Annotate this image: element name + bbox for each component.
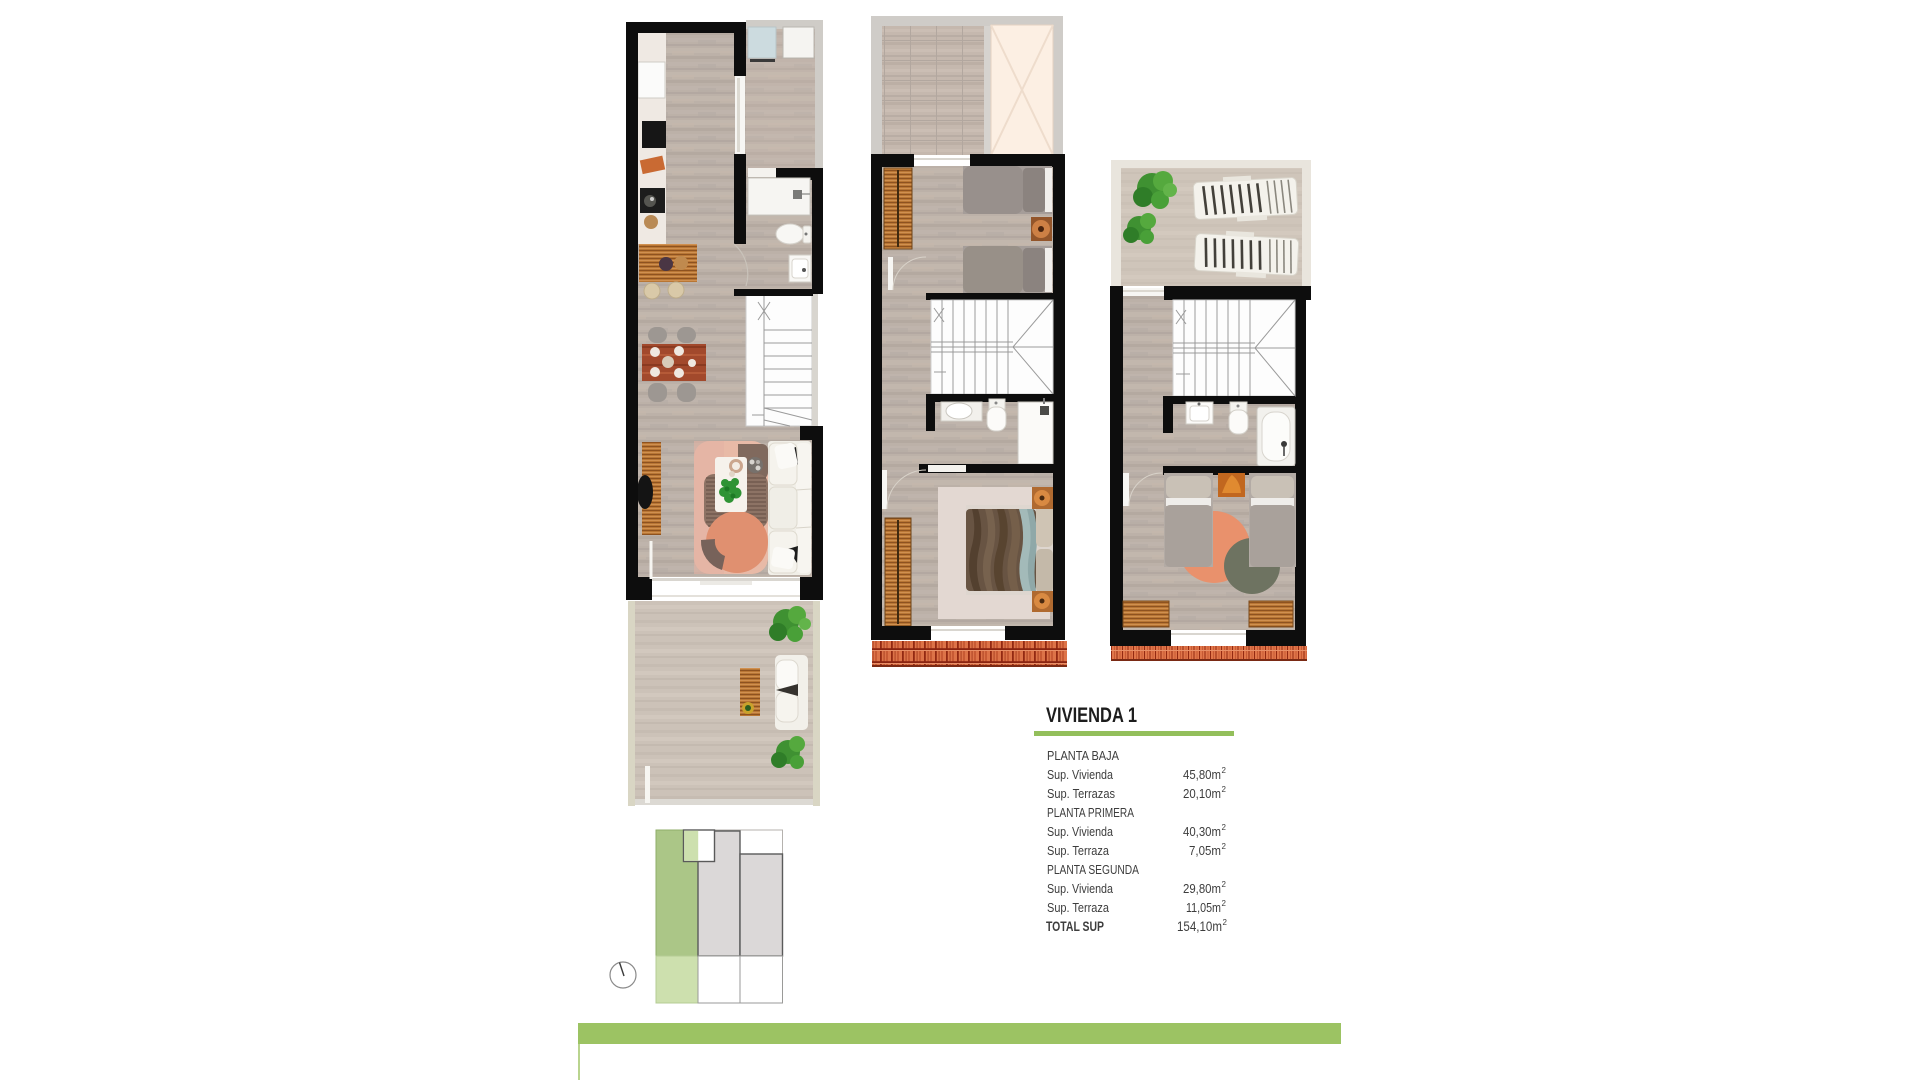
svg-text:45,80m: 45,80m <box>1183 767 1221 782</box>
svg-text:2: 2 <box>1222 823 1227 832</box>
svg-text:Sup. Terraza: Sup. Terraza <box>1047 900 1110 915</box>
svg-text:Sup. Vivienda: Sup. Vivienda <box>1047 824 1114 839</box>
svg-text:154,10m: 154,10m <box>1177 919 1222 934</box>
svg-text:Sup. Vivienda: Sup. Vivienda <box>1047 767 1114 782</box>
svg-text:PLANTA SEGUNDA: PLANTA SEGUNDA <box>1047 862 1139 877</box>
svg-text:11,05m: 11,05m <box>1186 900 1221 915</box>
svg-text:2: 2 <box>1222 766 1227 775</box>
svg-text:2: 2 <box>1222 785 1227 794</box>
svg-text:2: 2 <box>1222 899 1227 908</box>
svg-text:20,10m: 20,10m <box>1183 786 1221 801</box>
svg-text:40,30m: 40,30m <box>1183 824 1221 839</box>
svg-text:2: 2 <box>1222 842 1227 851</box>
svg-text:Sup. Vivienda: Sup. Vivienda <box>1047 881 1114 896</box>
svg-text:2: 2 <box>1223 918 1228 927</box>
svg-text:2: 2 <box>1222 880 1227 889</box>
svg-text:PLANTA BAJA: PLANTA BAJA <box>1047 748 1119 763</box>
svg-text:Sup. Terraza: Sup. Terraza <box>1047 843 1110 858</box>
svg-text:7,05m: 7,05m <box>1189 843 1221 858</box>
svg-text:TOTAL SUP: TOTAL SUP <box>1046 919 1104 934</box>
svg-text:Sup. Terrazas: Sup. Terrazas <box>1047 786 1115 801</box>
svg-text:PLANTA PRIMERA: PLANTA PRIMERA <box>1047 805 1134 820</box>
svg-text:29,80m: 29,80m <box>1183 881 1221 896</box>
svg-text:VIVIENDA 1: VIVIENDA 1 <box>1046 704 1137 727</box>
